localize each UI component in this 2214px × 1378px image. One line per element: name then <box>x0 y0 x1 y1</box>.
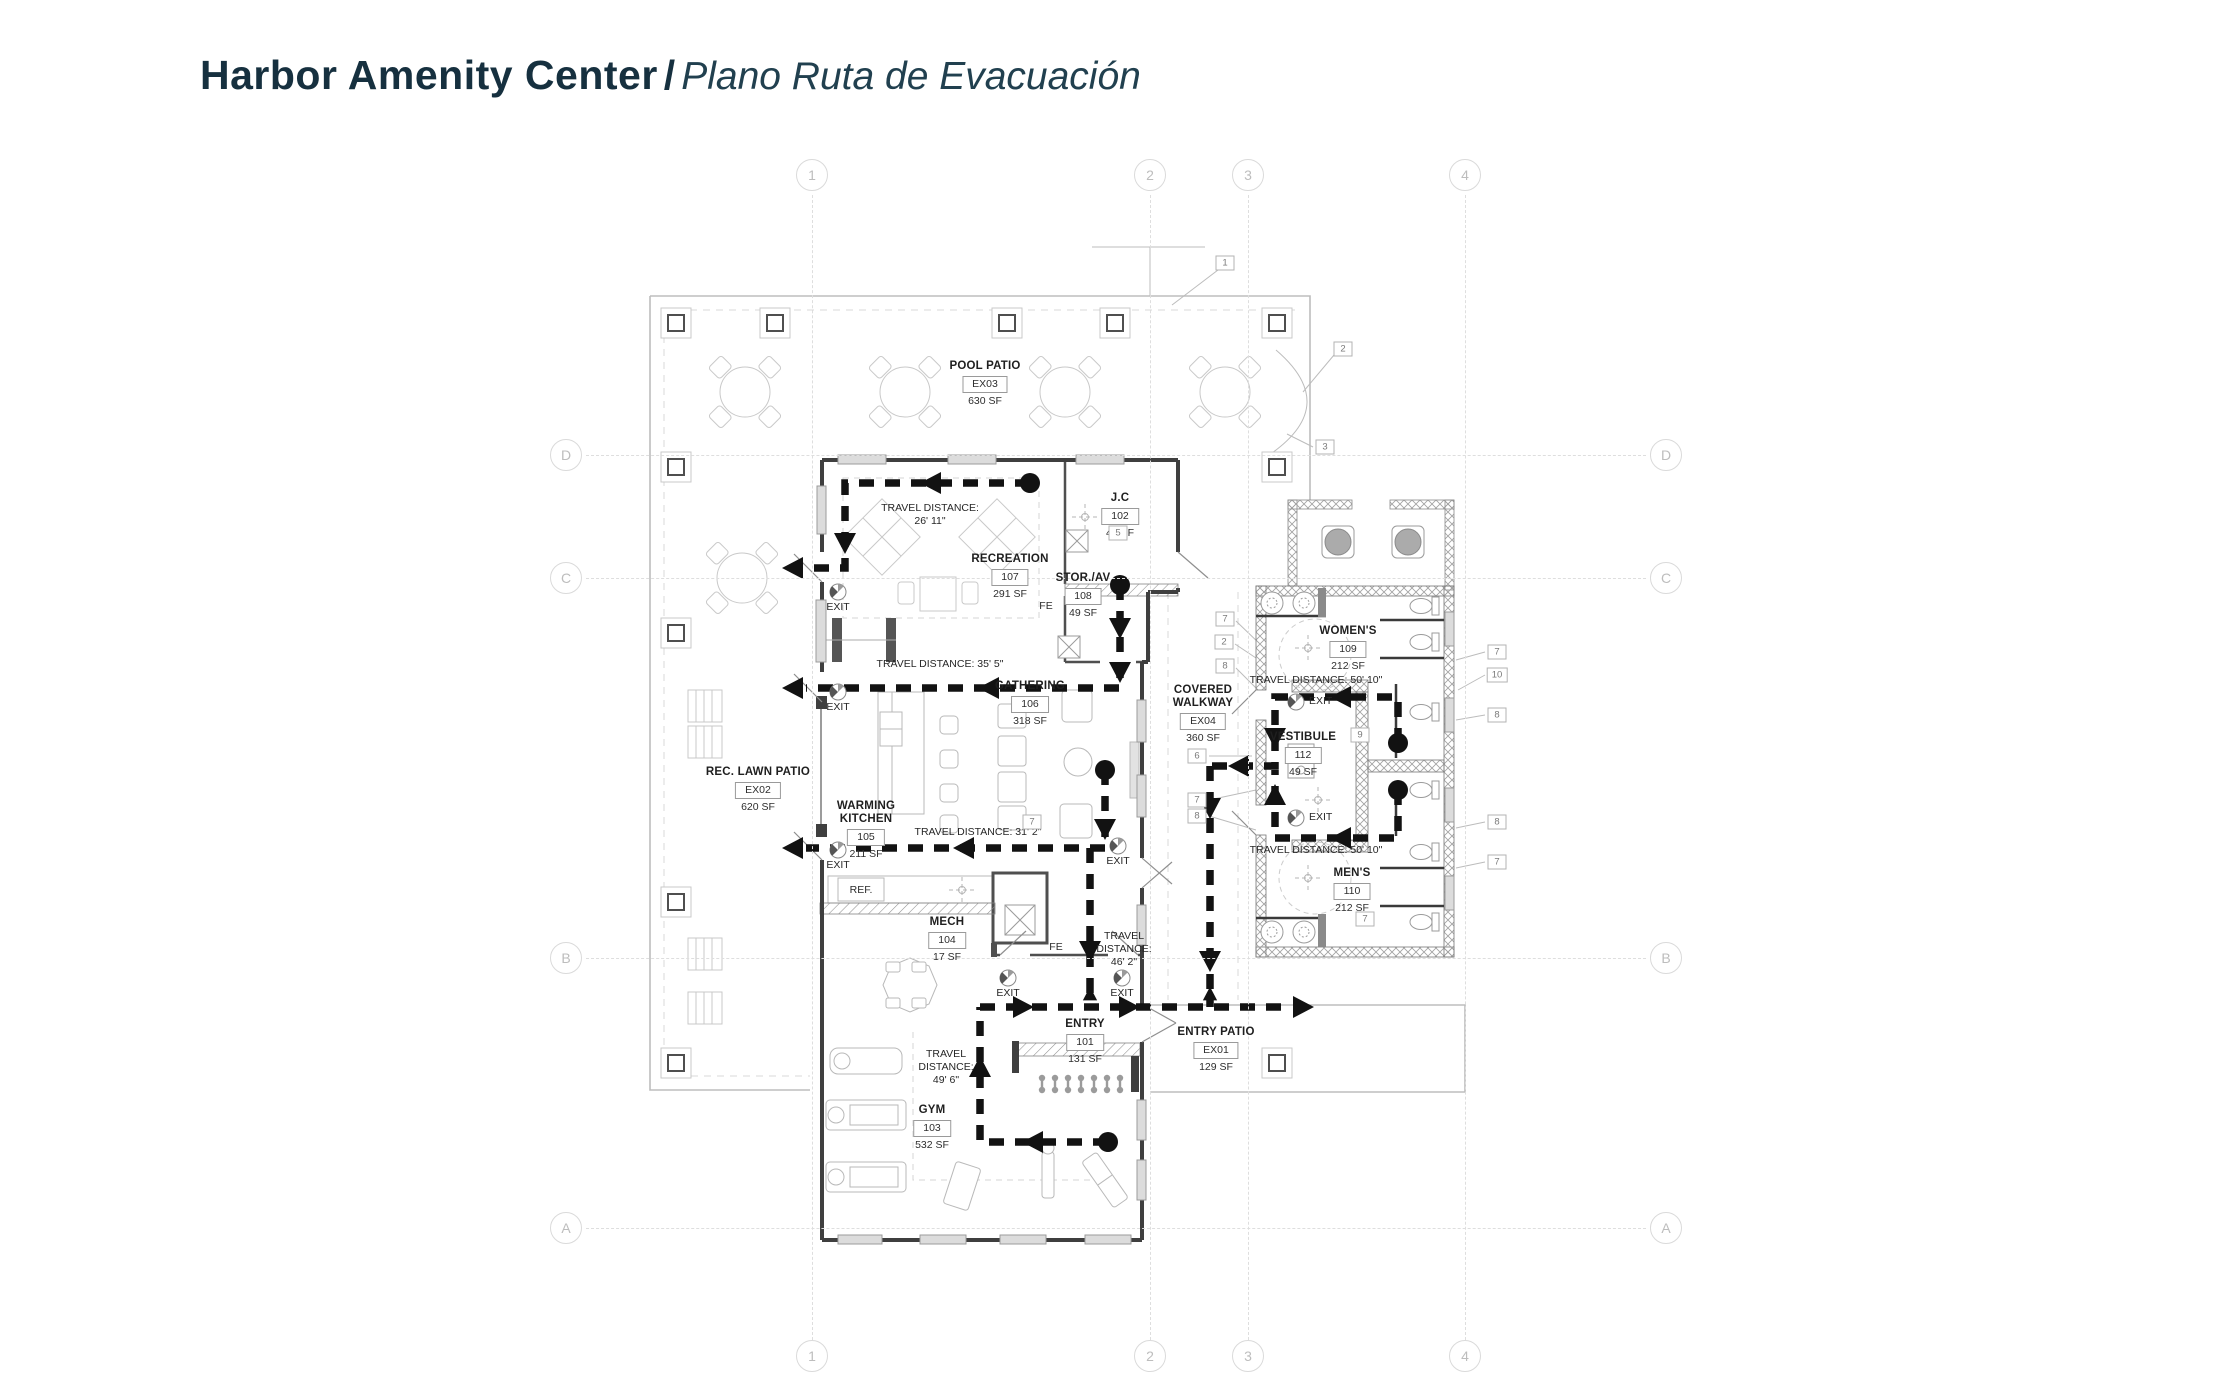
room-label-gym: GYM103532 SF <box>913 1104 951 1151</box>
keynote-tag-3: 3 <box>1316 440 1335 455</box>
room-name: WOMEN'S <box>1319 625 1376 638</box>
room-area: 131 SF <box>1065 1053 1105 1065</box>
exit-label: EXIT <box>1106 855 1129 867</box>
keynote-tag-7: 7 <box>1356 912 1375 927</box>
exit-symbol-icon <box>829 683 847 701</box>
keynote-tag-8: 8 <box>1188 809 1207 824</box>
room-area: 49 SF <box>1056 607 1111 619</box>
room-label-covered-walkway: COVERED WALKWAYEX04360 SF <box>1173 684 1233 744</box>
room-name: STOR./AV <box>1056 572 1111 585</box>
grid-bubble-row-A-left: A <box>550 1212 582 1244</box>
room-number-tag: EX03 <box>962 376 1008 393</box>
room-area: 17 SF <box>928 951 966 963</box>
refrigerator-label: REF. <box>850 884 873 896</box>
grid-bubble-row-A-right: A <box>1650 1212 1682 1244</box>
keynote-tag-2: 2 <box>1215 635 1234 650</box>
room-area: 129 SF <box>1177 1061 1254 1073</box>
exit-label: EXIT <box>1110 987 1133 999</box>
room-number-tag: 112 <box>1285 747 1322 764</box>
keynote-tag-7: 7 <box>1188 793 1207 808</box>
room-name: ENTRY PATIO <box>1177 1026 1254 1039</box>
exit-symbol-icon <box>829 841 847 859</box>
keynote-tag-7: 7 <box>1023 815 1042 830</box>
room-number-tag: 110 <box>1334 883 1371 900</box>
room-label-mech: MECH10417 SF <box>928 916 966 963</box>
keynote-tag-10: 10 <box>1487 668 1508 683</box>
room-area: 620 SF <box>706 801 810 813</box>
room-label-entry-patio: ENTRY PATIOEX01129 SF <box>1177 1026 1254 1073</box>
keynote-tag-5: 5 <box>1109 526 1128 541</box>
room-number-tag: 105 <box>847 829 885 846</box>
grid-column-line-2 <box>1150 195 1151 1340</box>
grid-bubble-col-1-bottom: 1 <box>796 1340 828 1372</box>
room-area: 212 SF <box>1319 660 1376 672</box>
fe-recreation-label: FE <box>1039 600 1052 612</box>
travel-distance-label-gathering: TRAVEL DISTANCE: 35' 5" <box>877 658 1004 671</box>
room-number-tag: 104 <box>928 932 966 949</box>
room-name: RECREATION <box>971 553 1048 566</box>
grid-bubble-row-B-left: B <box>550 942 582 974</box>
grid-column-line-1 <box>812 195 813 1340</box>
room-label-vestibule: VESTIBULE11249 SF <box>1270 731 1336 778</box>
room-name: ENTRY <box>1065 1018 1105 1031</box>
travel-distance-label-gym: TRAVEL DISTANCE: 49' 6" <box>918 1048 973 1087</box>
exit-symbol-icon <box>999 969 1017 987</box>
travel-distance-label-rec: TRAVEL DISTANCE: 26' 11" <box>881 502 979 528</box>
room-number-tag: EX01 <box>1193 1042 1239 1059</box>
room-number-tag: 101 <box>1066 1034 1104 1051</box>
keynote-tag-8: 8 <box>1488 815 1507 830</box>
keynote-tag-7: 7 <box>1488 855 1507 870</box>
room-number-tag: 108 <box>1064 588 1102 605</box>
room-name: POOL PATIO <box>949 360 1020 373</box>
evacuation-plan-page: Harbor Amenity Center/Plano Ruta de Evac… <box>0 0 2214 1378</box>
room-name: REC. LAWN PATIO <box>706 766 810 779</box>
grid-row-line-C <box>586 578 1646 579</box>
room-label-gathering: GATHERING106318 SF <box>995 680 1065 727</box>
room-name: MEN'S <box>1334 867 1371 880</box>
room-number-tag: 109 <box>1329 641 1367 658</box>
grid-bubble-col-2-top: 2 <box>1134 159 1166 191</box>
grid-bubble-row-B-right: B <box>1650 942 1682 974</box>
room-area: 360 SF <box>1173 732 1233 744</box>
keynote-tag-6: 6 <box>1188 749 1207 764</box>
room-number-tag: 106 <box>1011 696 1049 713</box>
travel-distance-label-womens: TRAVEL DISTANCE: 50' 10" <box>1250 674 1383 687</box>
room-label-entry: ENTRY101131 SF <box>1065 1018 1105 1065</box>
keynote-tag-2: 2 <box>1334 342 1353 357</box>
grid-bubble-row-C-left: C <box>550 562 582 594</box>
room-label-rec-lawn-patio: REC. LAWN PATIOEX02620 SF <box>706 766 810 813</box>
grid-bubble-col-2-bottom: 2 <box>1134 1340 1166 1372</box>
exit-label: EXIT <box>826 601 849 613</box>
room-name: VESTIBULE <box>1270 731 1336 744</box>
room-area: 291 SF <box>971 588 1048 600</box>
room-area: 532 SF <box>913 1139 951 1151</box>
grid-bubble-row-D-right: D <box>1650 439 1682 471</box>
room-name: GYM <box>913 1104 951 1117</box>
room-name: GATHERING <box>995 680 1065 693</box>
room-label-pool-patio: POOL PATIOEX03630 SF <box>949 360 1020 407</box>
room-label-stor-av: STOR./AV10849 SF <box>1056 572 1111 619</box>
room-area: 630 SF <box>949 395 1020 407</box>
exit-symbol-icon <box>1109 837 1127 855</box>
room-number-tag: 107 <box>991 569 1029 586</box>
grid-column-line-3 <box>1248 195 1249 1340</box>
room-label-recreation: RECREATION107291 SF <box>971 553 1048 600</box>
room-label-womens: WOMEN'S109212 SF <box>1319 625 1376 672</box>
floor-plan-drawing <box>0 0 2214 1378</box>
grid-bubble-row-C-right: C <box>1650 562 1682 594</box>
room-number-tag: EX04 <box>1180 713 1226 730</box>
keynote-tag-8: 8 <box>1216 659 1235 674</box>
room-name: COVERED WALKWAY <box>1173 684 1233 710</box>
grid-row-line-A <box>586 1228 1646 1229</box>
keynote-tag-7: 7 <box>1488 645 1507 660</box>
room-number-tag: 102 <box>1101 508 1139 525</box>
room-area: 49 SF <box>1270 766 1336 778</box>
exit-symbol-icon <box>1113 969 1131 987</box>
grid-bubble-col-1-top: 1 <box>796 159 828 191</box>
grid-column-line-4 <box>1465 195 1466 1340</box>
grid-bubble-col-4-bottom: 4 <box>1449 1340 1481 1372</box>
fe-mech-label: FE <box>1049 941 1062 953</box>
keynote-tag-1: 1 <box>1216 256 1235 271</box>
grid-bubble-col-4-top: 4 <box>1449 159 1481 191</box>
room-area: 318 SF <box>995 715 1065 727</box>
travel-distance-label-mens: TRAVEL DISTANCE: 50' 10" <box>1250 844 1383 857</box>
exit-label: EXIT <box>996 987 1019 999</box>
keynote-tag-8: 8 <box>1488 708 1507 723</box>
grid-row-line-D <box>586 455 1646 456</box>
room-name: MECH <box>928 916 966 929</box>
keynote-tag-9: 9 <box>1351 728 1370 743</box>
exit-label: EXIT <box>826 701 849 713</box>
grid-bubble-row-D-left: D <box>550 439 582 471</box>
exit-symbol-icon <box>1287 693 1305 711</box>
exit-label: EXIT <box>1309 811 1332 823</box>
room-label-mens: MEN'S110212 SF <box>1334 867 1371 914</box>
exit-label: EXIT <box>1309 695 1332 707</box>
travel-distance-label-entry: TRAVEL DISTANCE: 46' 2" <box>1096 930 1151 969</box>
room-name: WARMING KITCHEN <box>837 800 895 826</box>
room-number-tag: EX02 <box>735 782 781 799</box>
room-name: J.C <box>1101 492 1139 505</box>
grid-bubble-col-3-top: 3 <box>1232 159 1264 191</box>
exit-symbol-icon <box>1287 809 1305 827</box>
grid-bubble-col-3-bottom: 3 <box>1232 1340 1264 1372</box>
exit-symbol-icon <box>829 583 847 601</box>
keynote-tag-7: 7 <box>1216 612 1235 627</box>
room-number-tag: 103 <box>913 1120 951 1137</box>
exit-label: EXIT <box>826 859 849 871</box>
